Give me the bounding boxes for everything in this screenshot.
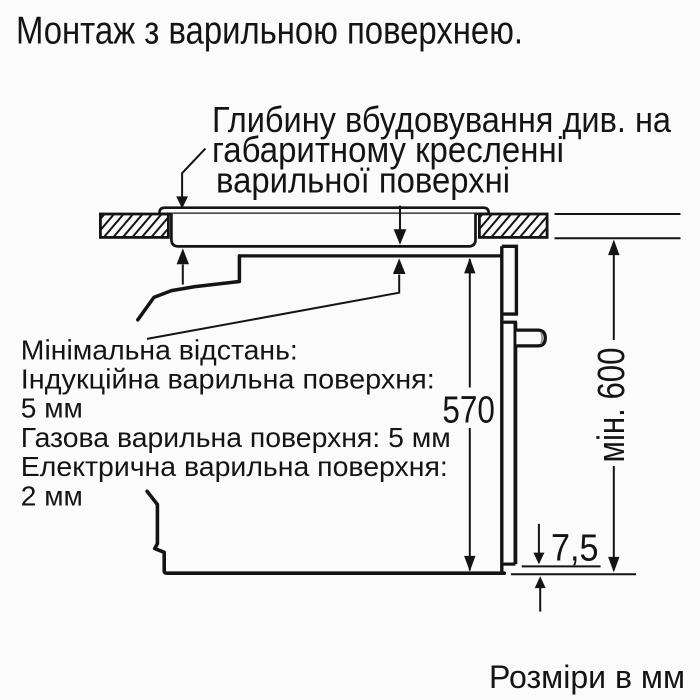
svg-text:Монтаж з варильною поверхнею.: Монтаж з варильною поверхнею. — [16, 9, 523, 52]
svg-text:Індукційна варильна поверхня:: Індукційна варильна поверхня: — [21, 364, 435, 395]
svg-text:Газова варильна поверхня: 5 мм: Газова варильна поверхня: 5 мм — [21, 422, 451, 453]
svg-text:570: 570 — [442, 389, 495, 431]
svg-text:2 мм: 2 мм — [21, 481, 83, 512]
svg-text:Розміри в мм: Розміри в мм — [489, 659, 685, 695]
svg-text:варильної поверхні: варильної поверхні — [216, 159, 510, 200]
svg-text:7,5: 7,5 — [551, 527, 599, 569]
svg-text:Мінімальна відстань:: Мінімальна відстань: — [21, 335, 298, 366]
svg-text:5 мм: 5 мм — [21, 393, 83, 424]
svg-text:Електрична варильна поверхня:: Електрична варильна поверхня: — [21, 451, 448, 482]
svg-text:мін. 600: мін. 600 — [591, 348, 633, 463]
